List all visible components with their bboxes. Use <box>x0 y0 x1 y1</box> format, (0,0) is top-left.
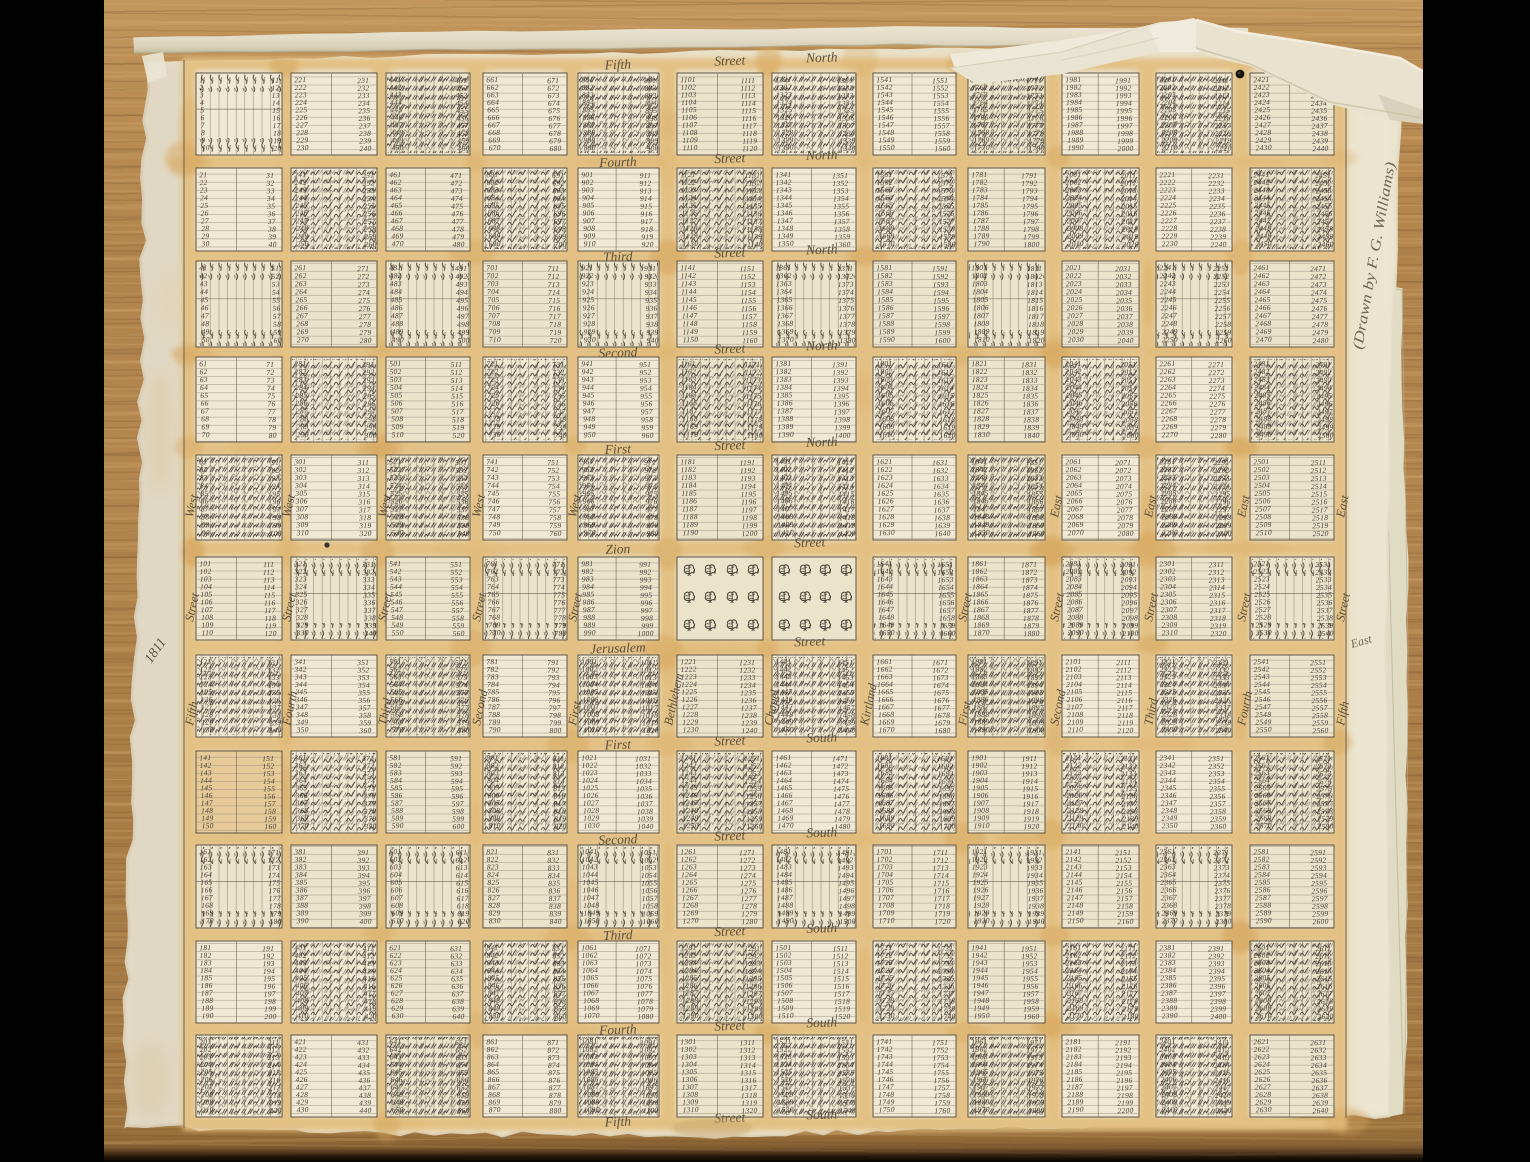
svg-text:181118121813181418151816181718: 1811181218131814181518161817181818191820 <box>1026 264 1045 346</box>
svg-text:168116821683168416851686168716: 1681168216831684168516861687168816891690 <box>876 753 895 831</box>
svg-text:262126222623262426252626262726: 2621262226232624262526262627262826292630 <box>1253 1037 1272 1115</box>
svg-text:148114821483148414851486148714: 1481148214831484148514861487148814891490 <box>775 847 794 926</box>
svg-text:235123522353235423552356235723: 2351235223532354235523562357235823592360 <box>1208 754 1227 832</box>
svg-text:222122222223222422252226222722: 2221222222232224222522262227222822292230 <box>1159 170 1178 249</box>
svg-text:170117021703170417051706170717: 1701170217031704170517061707170817091710 <box>876 847 895 926</box>
svg-text:114111421143114411451146114711: 1141114211431144114511461147114811491150 <box>680 263 698 344</box>
svg-text:152115221523152415251526152715: 1521152215231524152515261527152815291530 <box>775 1037 794 1115</box>
svg-text:140114021403140414051406140714: 1401140214031404140514061407140814091410 <box>775 457 794 538</box>
svg-text:180118021803180418051806180718: 1801180218031804180518061807180818091810 <box>971 263 990 345</box>
svg-text:260126022603260426052606260726: 2601260226032604260526062607260826092610 <box>1253 943 1272 1021</box>
svg-text:146114621463146414651466146714: 1461146214631464146514661467146814691470 <box>775 753 794 831</box>
svg-text:110111021103110411051106110711: 1101110211031104110511061107110811091110 <box>680 75 698 152</box>
svg-text:263126322633263426352636263726: 2631263226332634263526362637263826392640 <box>1310 1038 1329 1116</box>
svg-text:232123222323232423252326232723: 2321232223232324232523262327232823292330 <box>1159 657 1178 735</box>
svg-text:371372373374375376377378379380: 371372373374375376377378379380 <box>361 754 377 831</box>
svg-text:193119321933193419351936193719: 1931193219331934193519361937193819391940 <box>1026 848 1045 927</box>
svg-text:208120822083208420852086208720: 2081208220832084208520862087208820892090 <box>1065 559 1084 638</box>
svg-text:157115721573157415751576157715: 1571157215731574157515761577157815791580 <box>937 171 956 250</box>
svg-text:137113721373137413751376137713: 1371137213731374137513761377137813791380 <box>837 264 856 346</box>
svg-text:198119821983198419851986198719: 1981198219831984198519861987198819891990 <box>1065 75 1084 153</box>
svg-text:253125322533253425352536253725: 2531253225332534253525362537253825392540 <box>1315 560 1334 639</box>
svg-text:159115921593159415951596159715: 1591159215931594159515961597159815991600 <box>932 264 951 346</box>
svg-text:116111621163116411651166116711: 1161116211631164116511661167116811691170 <box>680 359 698 439</box>
svg-text:218121822183218421852186218721: 2181218221832184218521862187218821892190 <box>1065 1037 1084 1115</box>
svg-text:231123122313231423152316231723: 2311231223132314231523162317231823192320 <box>1208 560 1227 639</box>
svg-text:145114521453145414551456145714: 1451145214531454145514561457145814591460 <box>837 658 856 736</box>
svg-text:172117221723172417251726172717: 1721172217231724172517261727172817291730 <box>876 943 895 1021</box>
svg-text:165116521653165416551656165716: 1651165216531654165516561657165816591660 <box>937 560 956 639</box>
svg-text:171117121713171417151716171717: 1711171217131714171517161717171817191720 <box>932 848 951 927</box>
svg-text:108110821083108410851086108710: 1081108210831084108510861087108810891090 <box>581 1037 600 1115</box>
svg-text:237123722373237423752376237723: 2371237223732374237523762377237823792380 <box>1213 848 1232 927</box>
svg-text:131113121313131413151316131713: 1311131213131314131513161317131813191320 <box>739 1038 758 1116</box>
svg-text:133113321333133413351336133713: 1331133213331334133513361337133813391340 <box>837 76 856 154</box>
svg-text:147114721473147414751476147714: 1471147214731474147514761477147814791480 <box>832 754 851 832</box>
svg-text:246124622463246424652466246724: 2461246224632464246524662467246824692470 <box>1253 263 1272 345</box>
svg-text:311312313314315316317318319320: 311312313314315316317318319320 <box>356 458 372 538</box>
svg-text:242124222423242424252426242724: 2421242224232424242524262427242824292430 <box>1253 75 1272 153</box>
svg-text:220122022203220422052206220722: 2201220222032204220522062207220822092210 <box>1159 75 1178 153</box>
svg-text:106110621063106410651066106710: 1061106210631064106510661067106810691070 <box>581 943 600 1021</box>
svg-text:391392393394395396397398399400: 391392393394395396397398399400 <box>356 848 372 926</box>
svg-text:103110321033103410351036103710: 1031103210331034103510361037103810391040 <box>635 754 654 832</box>
svg-text:234123422343234423452346234723: 2341234223432344234523462347234823492350 <box>1159 753 1178 831</box>
svg-text:361362363364365366367368369370: 361362363364365366367368369370 <box>293 753 309 830</box>
svg-text:291292293294295296297298299300: 291292293294295296297298299300 <box>361 360 377 440</box>
svg-text:113111321133113411351136113711: 1131113211331134113511361137113811391140 <box>744 171 762 249</box>
svg-text:210121022103210421052106210721: 2101210221032104210521062107210821092110 <box>1065 657 1084 735</box>
svg-text:223122322233223422352236223722: 2231223222332234223522362237223822392240 <box>1208 171 1227 250</box>
svg-text:117111721173117411751176117711: 1171117211731174117511761177117811791180 <box>744 360 762 440</box>
svg-text:195119521953195419551956195719: 1951195219531954195519561957195819591960 <box>1021 944 1040 1022</box>
svg-text:173117321733173417351736173717: 1731173217331734173517361737173817391740 <box>937 944 956 1022</box>
svg-text:255125522553255425552556255725: 2551255225532554255525562557255825592560 <box>1310 658 1329 736</box>
svg-text:134113421343134413451346134713: 1341134213431344134513461347134813491350 <box>775 170 794 249</box>
svg-text:188118821883188418851886188718: 1881188218831884188518861887188818891890 <box>971 657 990 735</box>
svg-text:230123022303230423052306230723: 2301230223032304230523062307230823092310 <box>1159 559 1178 638</box>
svg-text:216121622163216421652166216721: 2161216221632164216521662167216821692170 <box>1065 943 1084 1021</box>
svg-text:166116621663166416651666166716: 1661166216631664166516661667166816691670 <box>876 657 895 735</box>
svg-text:187118721873187418751876187718: 1871187218731874187518761877187818791880 <box>1021 560 1040 639</box>
svg-text:206120622063206420652066206720: 2061206220632064206520662067206820692070 <box>1065 457 1084 538</box>
svg-text:105110521053105410551056105710: 1051105210531054105510561057105810591060 <box>640 848 659 927</box>
svg-text:197119721973197419751976197719: 1971197219731974197519761977197819791980 <box>1026 1038 1045 1116</box>
svg-text:123112321233123412351236123712: 1231123212331234123512361237123812391240 <box>739 658 758 736</box>
svg-text:194119421943194419451946194719: 1941194219431944194519461947194819491950 <box>971 943 990 1021</box>
svg-text:151115121513151415151516151715: 1511151215131514151515161517151815191520 <box>832 944 851 1022</box>
svg-text:258125822583258425852586258725: 2581258225832584258525862587258825892590 <box>1253 847 1272 926</box>
svg-text:161116121613161416151616161716: 1611161216131614161516161617161816191620 <box>937 360 956 441</box>
svg-text:150115021503150415051506150715: 1501150215031504150515061507150815091510 <box>775 943 794 1021</box>
svg-text:124112421243124412451246124712: 1241124212431244124512461247124812491250 <box>680 753 699 831</box>
svg-text:163116321633163416351636163716: 1631163216331634163516361637163816391640 <box>932 458 951 539</box>
svg-text:227122722273227422752276227722: 2271227222732274227522762277227822792280 <box>1208 360 1227 441</box>
svg-text:177117721773177417751776177717: 1771177217731774177517761777177817791780 <box>1026 76 1045 154</box>
svg-text:132113221323132413251326132713: 1321132213231324132513261327132813291330 <box>775 75 794 153</box>
svg-text:351352353354355356357358359360: 351352353354355356357358359360 <box>356 658 372 735</box>
svg-text:257125722573257425752576257725: 2571257225732574257525762577257825792580 <box>1315 754 1334 832</box>
svg-text:182118221823182418251826182718: 1821182218231824182518261827182818291830 <box>971 359 990 440</box>
svg-text:100110021003100410051006100710: 1001100210031004100510061007100810091010 <box>581 657 600 735</box>
svg-text:109110921093109410951096109710: 1091109210931094109510961097109810991100 <box>640 1038 659 1116</box>
svg-text:183118321833183418351836183718: 1831183218331834183518361837183818391840 <box>1021 360 1040 441</box>
svg-text:221122122213221422152216221722: 2211221222132214221522162217221822192220 <box>1213 76 1232 154</box>
svg-text:248124822483248424852486248724: 2481248224832484248524862487248824892490 <box>1253 359 1272 440</box>
svg-text:174117421743174417451746174717: 1741174217431744174517461747174817491750 <box>876 1037 895 1115</box>
svg-text:250125022503250425052506250725: 2501250225032504250525062507250825092510 <box>1253 457 1272 538</box>
svg-text:233123322333233423352336233723: 2331233223332334233523362337233823392340 <box>1213 658 1232 736</box>
svg-text:156115621563156415651566156715: 1561156215631564156515661567156815691570 <box>876 170 895 249</box>
svg-text:247124722473247424752476247724: 2471247224732474247524762477247824792480 <box>1310 264 1329 346</box>
svg-text:111111121113111411151116111711: 1111111211131114111511161117111811191120 <box>739 76 757 153</box>
svg-text:178117821783178417851786178717: 1781178217831784178517861787178817891790 <box>971 170 990 249</box>
svg-text:119111921193119411951196119711: 1191119211931194119511961197119811991200 <box>739 458 758 539</box>
svg-text:224122422243224422452246224722: 2241224222432244224522462247224822492250 <box>1159 263 1178 345</box>
svg-text:169116921693169416951696169716: 1691169216931694169516961697169816991700 <box>937 754 956 832</box>
svg-text:128112821283128412851286128712: 1281128212831284128512861287128812891290 <box>680 943 699 1021</box>
svg-text:239123922393239423952396239723: 2391239223932394239523962397239823992400 <box>1208 944 1227 1022</box>
svg-text:184118421843184418451846184718: 1841184218431844184518461847184818491850 <box>971 457 990 538</box>
svg-text:126112621263126412651266126712: 1261126212631264126512661267126812691270 <box>680 847 699 926</box>
svg-text:190119021903190419051906190719: 1901190219031904190519061907190819091910 <box>971 753 990 831</box>
svg-text:189118921893189418951896189718: 1891189218931894189518961897189818991900 <box>1026 658 1045 736</box>
svg-text:251125122513251425152516251725: 2511251225132514251525162517251825192520 <box>1310 458 1329 539</box>
svg-text:381382383384385386387388389390: 381382383384385386387388389390 <box>293 847 309 925</box>
svg-text:191119121913191419151916191719: 1911191219131914191519161917191819191920 <box>1021 754 1040 832</box>
svg-text:254125422543254425452546254725: 2541254225432544254525462547254825492550 <box>1253 657 1272 735</box>
svg-text:175117521753175417551756175717: 1751175217531754175517561757175817591760 <box>932 1038 951 1116</box>
svg-text:176117621763176417651766176717: 1761176217631764176517661767176817691770 <box>971 75 990 153</box>
svg-text:245124522453245424552456245724: 2451245224532454245524562457245824592460 <box>1315 171 1334 250</box>
svg-text:204120422043204420452046204720: 2041204220432044204520462047204820492050 <box>1065 359 1084 440</box>
svg-text:104110421043104410451046104710: 1041104210431044104510461047104810491050 <box>581 847 600 926</box>
svg-text:238123822383238423852386238723: 2381238223832384238523862387238823892390 <box>1159 943 1178 1021</box>
svg-text:213121322133213421352136213721: 2131213221332134213521362137213821392140 <box>1120 754 1139 832</box>
svg-text:214121422143214421452146214721: 2141214221432144214521462147214821492150 <box>1065 847 1084 926</box>
svg-text:141114121413141414151416141714: 1411141214131414141514161417141814191420 <box>837 458 856 539</box>
svg-text:112111221123112411251126112711: 1121112211231124112511261127112811291130 <box>680 170 698 248</box>
svg-text:228122822283228422852286228722: 2281228222832284228522862287228822892290 <box>1159 457 1178 538</box>
svg-text:240124022403240424052406240724: 2401240224032404240524062407240824092410 <box>1159 1037 1178 1115</box>
svg-text:200120022003200420052006200720: 2001200220032004200520062007200820092010 <box>1065 170 1084 249</box>
svg-text:236123622363236423652366236723: 2361236223632364236523662367236823692370 <box>1159 847 1178 926</box>
svg-text:259125922593259425952596259725: 2591259225932594259525962597259825992600 <box>1310 848 1329 927</box>
svg-text:249124922493249424952496249724: 2491249224932494249524962497249824992500 <box>1315 360 1334 441</box>
svg-text:261126122613261426152616261726: 2611261226132614261526162617261826192620 <box>1315 944 1334 1022</box>
svg-text:127112721273127412751276127712: 1271127212731274127512761277127812791280 <box>739 848 758 927</box>
svg-text:107110721073107410751076107710: 1071107210731074107510761077107810791080 <box>635 944 654 1022</box>
svg-text:256125622563256425652566256725: 2561256225632564256525662567256825692570 <box>1253 753 1272 831</box>
svg-text:207120722073207420752076207720: 2071207220732074207520762077207820792080 <box>1115 458 1134 539</box>
svg-text:241124122413241424152416241724: 2411241224132414241524162417241824192420 <box>1213 1038 1232 1116</box>
svg-text:202120222023202420252026202720: 2021202220232024202520262027202820292030 <box>1065 263 1084 345</box>
svg-text:136113621363136413651366136713: 1361136213631364136513661367136813691370 <box>775 263 794 345</box>
svg-text:149114921493149414951496149714: 1491149214931494149514961497149814991500 <box>837 848 856 927</box>
svg-text:226122622263226422652266226722: 2261226222632264226522662267226822692270 <box>1159 359 1178 440</box>
svg-text:211121122113211421152116211721: 2111211221132114211521162117211821192120 <box>1115 658 1134 736</box>
svg-text:115111521153115411551156115711: 1151115211531154115511561157115811591160 <box>739 264 757 345</box>
svg-text:129112921293129412951296129712: 1291129212931294129512961297129812991300 <box>744 944 763 1022</box>
svg-text:155115521553155415551556155715: 1551155215531554155515561557155815591560 <box>932 76 951 154</box>
svg-text:229122922293229422952296229722: 2291229222932294229522962297229822992300 <box>1213 458 1232 539</box>
svg-text:252125222523252425252526252725: 2521252225232524252525262527252825292530 <box>1253 559 1272 638</box>
svg-text:201120122013201420152016201720: 2011201220132014201520162017201820192020 <box>1120 171 1139 250</box>
svg-text:101110121013101410151016101710: 1011101210131014101510161017101810191020 <box>640 658 659 736</box>
svg-text:331332333334335336337338339340: 331332333334335336337338339340 <box>361 560 377 638</box>
svg-text:153115321533153415351536153715: 1531153215331534153515361537153815391540 <box>837 1038 856 1116</box>
svg-text:205120522053205420552056205720: 2051205220532054205520562057205820592060 <box>1120 360 1139 441</box>
svg-text:135113521353135413551356135713: 1351135213531354135513561357135813591360 <box>832 171 851 250</box>
svg-text:138113821383138413851386138713: 1381138213831384138513861387138813891390 <box>775 359 794 440</box>
svg-text:244124422443244424452446244724: 2441244224432444244524462447244824492450 <box>1253 170 1272 249</box>
svg-text:179117921793179417951796179717: 1791179217931794179517961797179817991800 <box>1021 171 1040 250</box>
svg-text:125112521253125412551256125712: 1251125212531254125512561257125812591260 <box>744 754 763 832</box>
svg-text:139113921393139413951396139713: 1391139213931394139513961397139813991400 <box>832 360 851 441</box>
svg-text:162116221623162416251626162716: 1621162216231624162516261627162816291630 <box>876 457 895 538</box>
svg-text:209120922093209420952096209720: 2091209220932094209520962097209820992100 <box>1120 560 1139 639</box>
svg-text:192119221923192419251926192719: 1921192219231924192519261927192819291930 <box>971 847 990 926</box>
svg-text:167116721673167416751676167716: 1671167216731674167516761677167816791680 <box>932 658 951 736</box>
svg-text:102110221023102410251026102710: 1021102210231024102510261027102810291030 <box>581 753 600 831</box>
svg-text:217121722173217421752176217721: 2171217221732174217521762177217821792180 <box>1120 944 1139 1022</box>
svg-text:199119921993199419951996199719: 1991199219931994199519961997199819992000 <box>1115 76 1134 154</box>
svg-text:212121222123212421252126212721: 2121212221232124212521262127212821292130 <box>1065 753 1084 831</box>
svg-text:160116021603160416051606160716: 1601160216031604160516061607160816091610 <box>876 359 895 440</box>
svg-text:164116421643164416451646164716: 1641164216431644164516461647164816491650 <box>876 559 895 638</box>
svg-text:130113021303130413051306130713: 1301130213031304130513061307130813091310 <box>680 1037 699 1115</box>
svg-text:122112221223122412251226122712: 1221122212231224122512261227122812291230 <box>680 657 699 735</box>
svg-text:185118521853185418551856185718: 1851185218531854185518561857185818591860 <box>1026 458 1045 539</box>
svg-text:219121922193219421952196219721: 2191219221932194219521962197219821992200 <box>1115 1038 1134 1116</box>
svg-text:215121522153215421552156215721: 2151215221532154215521562157215821592160 <box>1115 848 1134 927</box>
svg-text:154115421543154415451546154715: 1541154215431544154515461547154815491550 <box>876 75 895 153</box>
svg-text:196119621963196419651966196719: 1961196219631964196519661967196819691970 <box>971 1037 990 1115</box>
svg-text:225122522253225422552256225722: 2251225222532254225522562257225822592260 <box>1213 264 1232 346</box>
svg-text:203120322033203420352036203720: 2031203220332034203520362037203820392040 <box>1115 264 1134 346</box>
svg-text:118111821183118411851186118711: 1181118211831184118511861187118811891190 <box>680 457 698 537</box>
svg-text:158115821583158415851586158715: 1581158215831584158515861587158815891590 <box>876 263 895 345</box>
